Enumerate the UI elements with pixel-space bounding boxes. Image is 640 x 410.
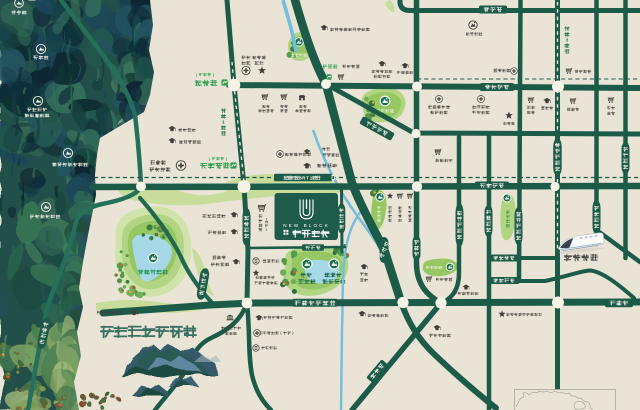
- svg-text:T: T: [306, 176, 309, 181]
- svg-text:1: 1: [310, 176, 313, 181]
- svg-text:): ): [266, 227, 267, 231]
- svg-text:(: (: [266, 217, 267, 221]
- svg-text:): ): [292, 331, 293, 335]
- svg-text:3: 3: [566, 38, 569, 44]
- svg-text:NEW BLOCK: NEW BLOCK: [283, 223, 329, 228]
- svg-text:1: 1: [222, 120, 225, 126]
